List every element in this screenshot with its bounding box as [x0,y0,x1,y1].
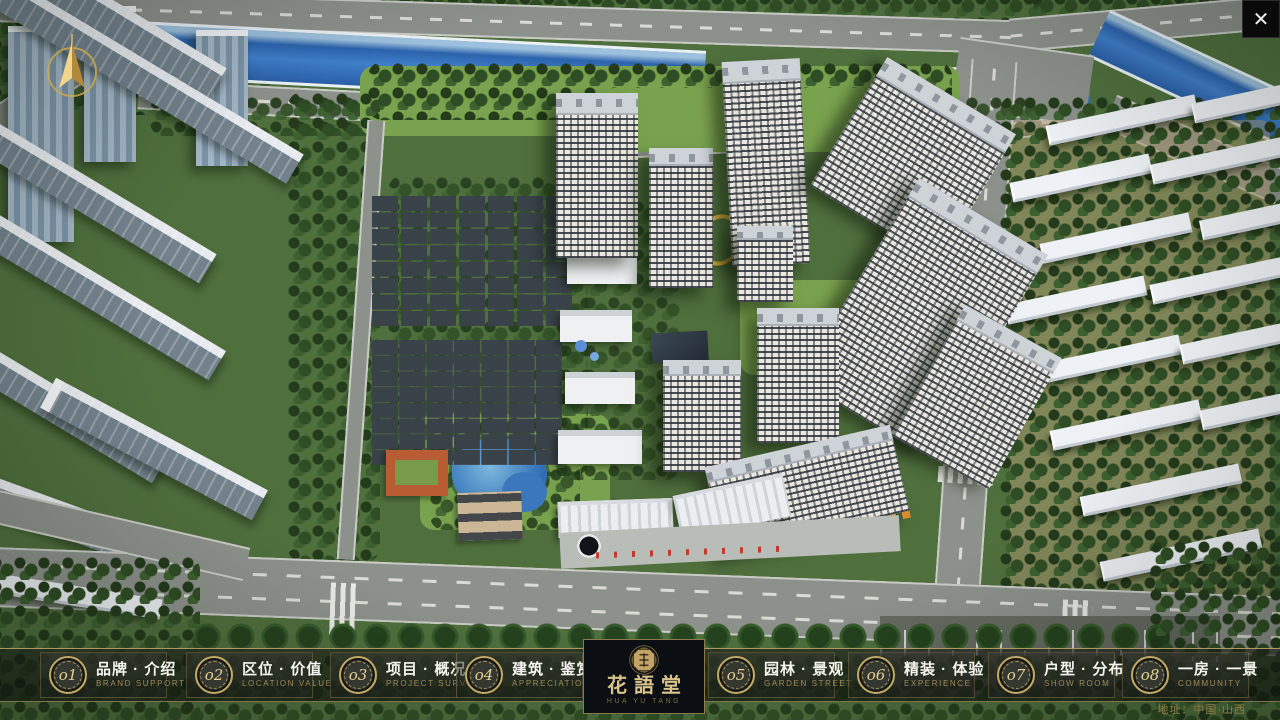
pool-deck [575,340,587,352]
nav-item-label: 一房 · 一景 [1178,662,1258,677]
tower [737,226,793,302]
midrise-building [565,372,635,404]
nav-item-subtitle: EXPERIENCE [904,680,984,688]
item-number-badge: o6 [857,656,895,694]
item-number: o8 [1141,666,1160,684]
item-number-badge: o4 [465,656,503,694]
nav-item-label: 户型 · 分布 [1044,662,1124,677]
project-logo[interactable]: 花語堂 HUA YU TANG [583,639,705,714]
nav-item-label: 园林 · 景观 [764,662,853,677]
nav-item-label: 建筑 · 鉴赏 [512,662,592,677]
logo-title: 花語堂 [607,675,688,695]
courtyard-houses [372,196,572,326]
item-number: o2 [205,666,224,684]
red-compound [386,450,448,496]
item-number-badge: o1 [49,656,87,694]
item-number: o1 [59,666,78,684]
logo-seal-icon [629,645,659,675]
presentation-window: ✕ o1 品牌 · 介绍 BRAND SUPPORT o2 区位 · 价值 LO… [0,0,1280,720]
logo-tagline: HUA YU TANG [607,698,681,705]
item-number-badge: o7 [997,656,1035,694]
nav-item-floorplans[interactable]: o7 户型 · 分布 SHOW ROOM [988,652,1115,698]
pool-deck [590,352,599,361]
courtyard-houses [372,340,562,465]
nav-item-subtitle: SHOW ROOM [1044,680,1124,688]
item-number: o6 [867,666,886,684]
item-number-badge: o2 [195,656,233,694]
clubhouse-roof [651,331,708,364]
item-number-badge: o8 [1131,656,1169,694]
nav-item-subtitle: APPRECIATION [512,680,592,688]
nav-item-architecture[interactable]: o4 建筑 · 鉴赏 APPRECIATION [456,652,583,698]
tower [649,148,713,288]
item-number: o7 [1007,666,1026,684]
nav-item-location-value[interactable]: o2 区位 · 价值 LOCATION VALUE [186,652,313,698]
nav-item-subtitle: COMMUNITY [1178,680,1258,688]
tower [556,93,638,258]
aerial-masterplan-render [0,0,1280,720]
item-number-badge: o3 [339,656,377,694]
nav-item-brand-intro[interactable]: o1 品牌 · 介绍 BRAND SUPPORT [40,652,167,698]
nav-item-room-view[interactable]: o8 一房 · 一景 COMMUNITY [1122,652,1249,698]
item-number: o4 [475,666,494,684]
midrise-building [560,310,632,342]
close-button[interactable]: ✕ [1242,0,1280,38]
close-icon: ✕ [1253,7,1270,32]
nav-item-project-overview[interactable]: o3 项目 · 概况 PROJECT SURVEY [330,652,457,698]
nav-item-landscape[interactable]: o5 园林 · 景观 GARDEN STREET [708,652,835,698]
item-number: o5 [727,666,746,684]
midrise-building [558,430,642,464]
tower [757,308,839,443]
tower [663,360,741,472]
nav-item-label: 品牌 · 介绍 [96,662,186,677]
project-address: 地址：中国·山西 [1157,701,1246,717]
nav-item-label: 精装 · 体验 [904,662,984,677]
nav-item-subtitle: LOCATION VALUE [242,680,333,688]
item-number: o3 [349,666,368,684]
chinese-courtyard [457,491,523,541]
compass-north-icon [38,32,106,104]
nav-item-interior-experience[interactable]: o6 精装 · 体验 EXPERIENCE [848,652,975,698]
nav-item-label: 区位 · 价值 [242,662,333,677]
nav-item-subtitle: BRAND SUPPORT [96,680,186,688]
item-number-badge: o5 [717,656,755,694]
nav-item-subtitle: GARDEN STREET [764,680,853,688]
